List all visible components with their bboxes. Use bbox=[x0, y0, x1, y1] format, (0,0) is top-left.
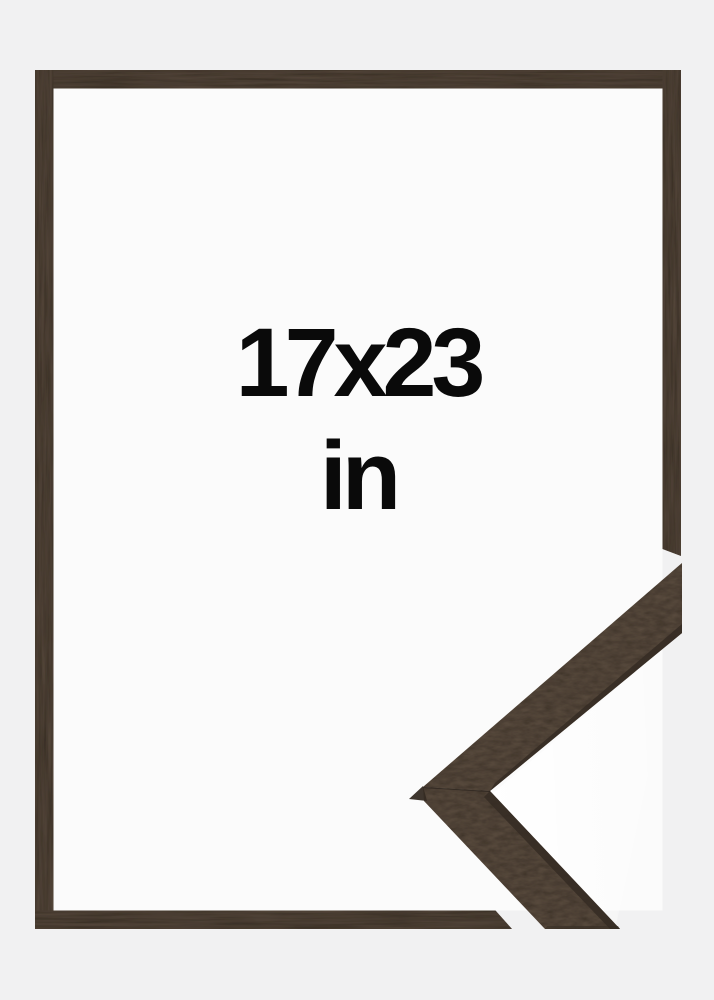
frame-border-left bbox=[35, 70, 54, 929]
frame-border-right bbox=[663, 70, 682, 556]
frame-border-top bbox=[35, 70, 681, 89]
frame-product-image: 17x23 in bbox=[0, 0, 714, 1000]
frame-border-bottom bbox=[35, 911, 512, 930]
lower-arm-bottom-cut-shade bbox=[545, 926, 620, 929]
frame-graphic bbox=[0, 0, 714, 1000]
